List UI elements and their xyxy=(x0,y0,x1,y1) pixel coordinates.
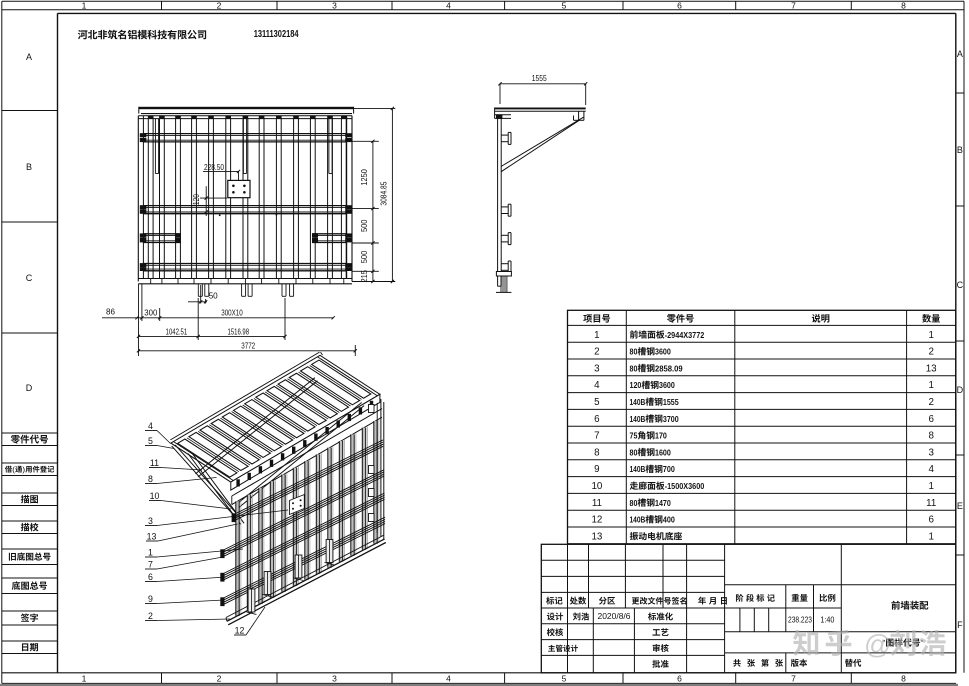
svg-text:8: 8 xyxy=(901,1,906,11)
svg-text:11: 11 xyxy=(926,498,936,509)
svg-text:1: 1 xyxy=(928,330,933,341)
svg-text:80: 80 xyxy=(630,363,638,373)
svg-text:2858.09: 2858.09 xyxy=(655,363,683,373)
svg-text:3772: 3772 xyxy=(241,341,255,351)
svg-text:2: 2 xyxy=(217,1,222,11)
svg-text:E: E xyxy=(957,501,963,511)
svg-text:300X10: 300X10 xyxy=(221,308,243,318)
svg-text:10: 10 xyxy=(150,491,160,501)
svg-text:215: 215 xyxy=(359,270,369,283)
svg-text:13: 13 xyxy=(926,363,937,374)
svg-text:2: 2 xyxy=(594,347,599,358)
svg-text:C: C xyxy=(26,273,33,283)
svg-text:140B: 140B xyxy=(630,414,646,424)
svg-text:5: 5 xyxy=(562,1,567,11)
svg-text:4: 4 xyxy=(594,380,600,391)
svg-text:3: 3 xyxy=(928,447,934,458)
svg-text:-1500X3600: -1500X3600 xyxy=(665,481,705,491)
svg-text:5: 5 xyxy=(594,397,600,408)
svg-text:7: 7 xyxy=(148,560,153,570)
svg-text:-2944X3772: -2944X3772 xyxy=(665,330,705,340)
svg-text:1: 1 xyxy=(928,380,933,391)
svg-text:6: 6 xyxy=(677,1,682,11)
svg-text:1042.51: 1042.51 xyxy=(166,326,188,336)
svg-text:500: 500 xyxy=(359,219,369,232)
svg-text:300: 300 xyxy=(144,308,157,318)
svg-text:8: 8 xyxy=(901,674,906,684)
svg-text:8: 8 xyxy=(928,431,934,442)
svg-text:2: 2 xyxy=(928,397,933,408)
svg-text:140B: 140B xyxy=(630,464,646,474)
svg-text:120: 120 xyxy=(630,380,642,390)
svg-text:6: 6 xyxy=(677,674,682,684)
svg-text:F: F xyxy=(957,620,963,630)
svg-text:@: @ xyxy=(864,630,891,660)
svg-text:120: 120 xyxy=(191,194,201,205)
svg-text:1470: 1470 xyxy=(655,498,671,508)
svg-text:80: 80 xyxy=(630,447,638,457)
svg-text:1: 1 xyxy=(928,531,933,542)
svg-text:8: 8 xyxy=(148,474,153,484)
svg-text:2: 2 xyxy=(148,611,153,621)
svg-text:170: 170 xyxy=(655,431,667,441)
svg-text:A: A xyxy=(957,49,963,59)
svg-text:C: C xyxy=(957,280,964,290)
svg-text:11: 11 xyxy=(592,498,602,509)
svg-text:): ) xyxy=(22,465,25,474)
svg-text:6: 6 xyxy=(928,414,934,425)
svg-text:7: 7 xyxy=(791,1,796,11)
svg-text:3: 3 xyxy=(594,363,600,374)
svg-text:1:40: 1:40 xyxy=(820,615,834,625)
svg-text:6: 6 xyxy=(928,515,934,526)
svg-text:75: 75 xyxy=(630,431,638,441)
svg-text:5: 5 xyxy=(148,436,153,446)
svg-text:700: 700 xyxy=(663,464,675,474)
svg-text:11: 11 xyxy=(150,458,159,468)
svg-text:7: 7 xyxy=(791,674,796,684)
svg-text:3600: 3600 xyxy=(655,347,671,357)
svg-text:140B: 140B xyxy=(630,515,646,525)
svg-text:B: B xyxy=(26,162,32,172)
svg-text:3084.85: 3084.85 xyxy=(378,181,388,205)
svg-text:D: D xyxy=(957,385,964,395)
svg-text:6: 6 xyxy=(594,414,600,425)
svg-text:3: 3 xyxy=(332,674,337,684)
svg-text:6: 6 xyxy=(148,572,153,582)
svg-text:1: 1 xyxy=(82,674,87,684)
svg-text:1: 1 xyxy=(594,330,599,341)
svg-text:3600: 3600 xyxy=(659,380,675,390)
svg-text:140B: 140B xyxy=(630,397,646,407)
svg-text:500: 500 xyxy=(359,251,369,264)
svg-text:4: 4 xyxy=(446,674,451,684)
svg-text:D: D xyxy=(26,383,33,393)
svg-text:80: 80 xyxy=(630,498,638,508)
svg-text:228.50: 228.50 xyxy=(204,162,224,172)
svg-text:80: 80 xyxy=(630,347,638,357)
svg-text:4: 4 xyxy=(928,464,934,475)
svg-text:13111302184: 13111302184 xyxy=(254,29,299,40)
svg-text:9: 9 xyxy=(148,594,153,604)
svg-text:13: 13 xyxy=(147,532,157,542)
svg-text:4: 4 xyxy=(148,421,153,431)
svg-text:3: 3 xyxy=(148,516,153,526)
svg-text:2: 2 xyxy=(928,347,933,358)
svg-text:12: 12 xyxy=(591,515,602,526)
svg-text:3700: 3700 xyxy=(663,414,679,424)
svg-text:13: 13 xyxy=(591,531,602,542)
svg-text:1516.98: 1516.98 xyxy=(228,326,250,336)
svg-text:3: 3 xyxy=(332,1,337,11)
svg-text:1600: 1600 xyxy=(655,447,671,457)
svg-text:2020/8/6: 2020/8/6 xyxy=(598,611,631,621)
svg-text:1: 1 xyxy=(82,1,87,11)
svg-text:A: A xyxy=(26,52,32,62)
svg-text:400: 400 xyxy=(663,515,675,525)
svg-text:4: 4 xyxy=(446,1,451,11)
svg-text:238.223: 238.223 xyxy=(788,615,812,625)
svg-text:9: 9 xyxy=(594,464,599,475)
svg-text:8: 8 xyxy=(594,447,600,458)
svg-text:12: 12 xyxy=(235,626,245,636)
svg-text:1: 1 xyxy=(148,548,153,558)
svg-text:5: 5 xyxy=(562,674,567,684)
svg-text:7: 7 xyxy=(594,431,599,442)
svg-text:1555: 1555 xyxy=(663,397,679,407)
svg-text:B: B xyxy=(957,145,963,155)
svg-text:10: 10 xyxy=(591,481,602,492)
svg-text:2: 2 xyxy=(217,674,222,684)
svg-text:50: 50 xyxy=(209,291,218,301)
svg-text:86: 86 xyxy=(106,307,115,317)
svg-text:1: 1 xyxy=(928,481,933,492)
svg-text:1250: 1250 xyxy=(359,169,369,186)
svg-text:1555: 1555 xyxy=(532,73,547,83)
